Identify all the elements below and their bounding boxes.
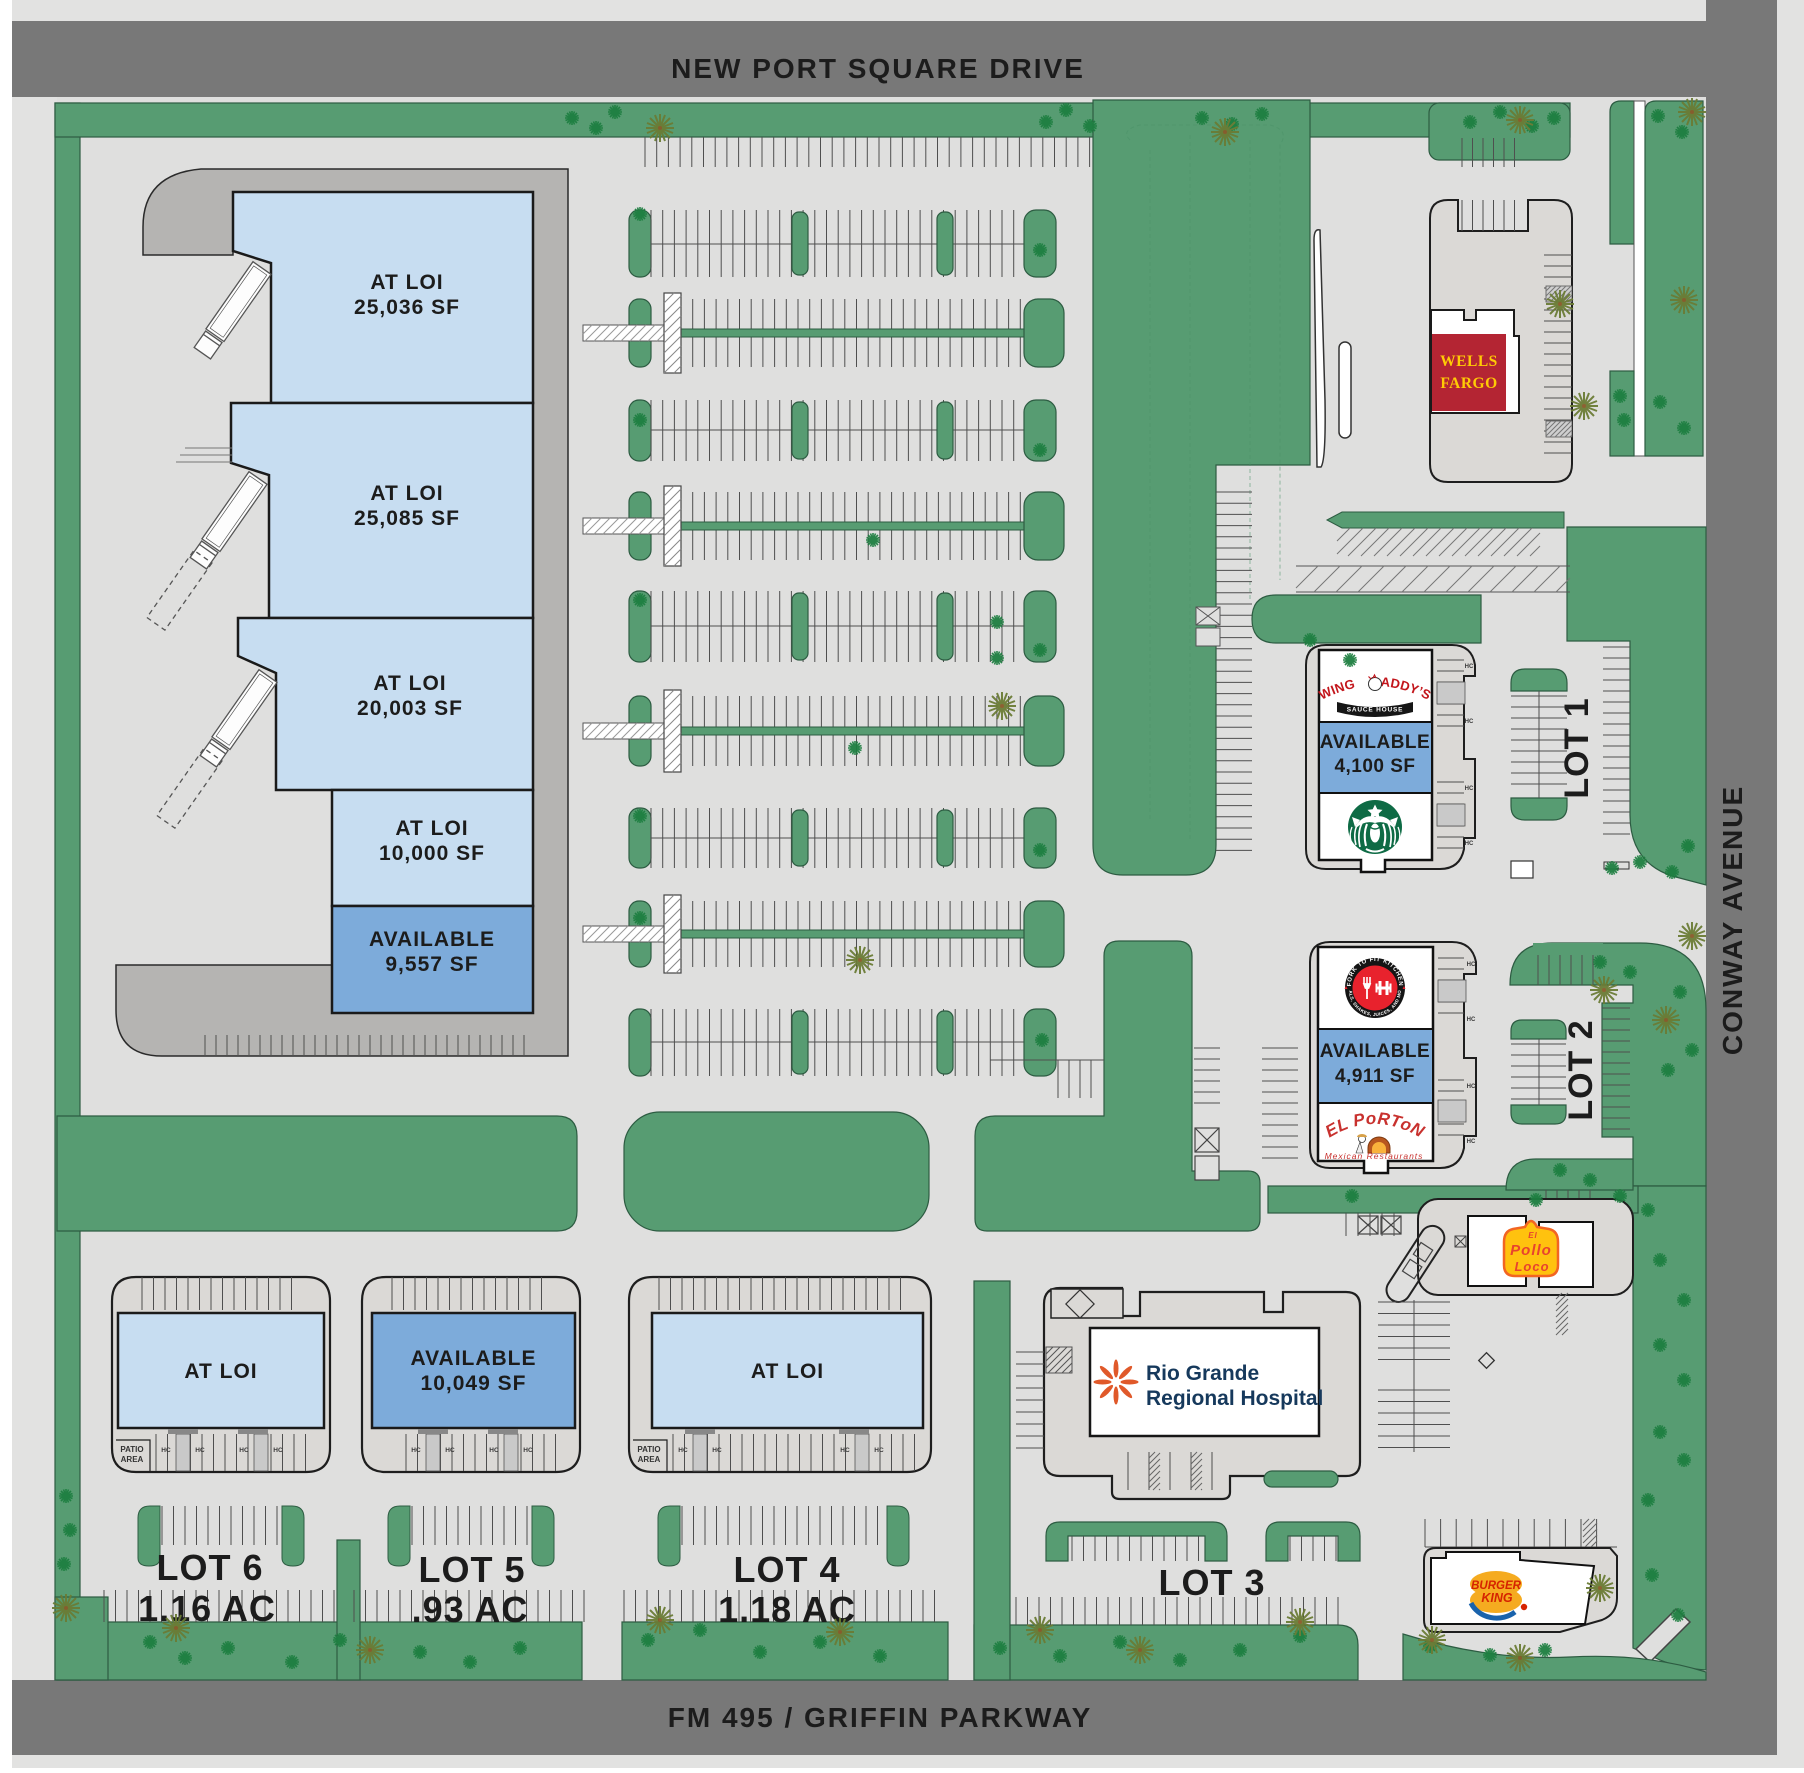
svg-text:CONWAY AVENUE: CONWAY AVENUE xyxy=(1717,785,1748,1055)
svg-text:4,100 SF: 4,100 SF xyxy=(1334,756,1415,777)
svg-text:FM 495 / GRIFFIN PARKWAY: FM 495 / GRIFFIN PARKWAY xyxy=(668,1702,1093,1733)
svg-text:HC: HC xyxy=(1467,1139,1476,1145)
svg-text:Rio Grande: Rio Grande xyxy=(1146,1362,1259,1385)
svg-text:10,000 SF: 10,000 SF xyxy=(379,842,485,865)
svg-text:Loco: Loco xyxy=(1514,1259,1549,1274)
svg-text:SAUCE HOUSE: SAUCE HOUSE xyxy=(1347,707,1403,714)
svg-text:AT LOI: AT LOI xyxy=(370,482,443,505)
svg-text:Pollo: Pollo xyxy=(1510,1242,1552,1259)
svg-text:1.16 AC: 1.16 AC xyxy=(138,1588,276,1629)
svg-text:Mexican Restaurants: Mexican Restaurants xyxy=(1325,1151,1424,1161)
svg-text:HC: HC xyxy=(1467,1084,1476,1090)
svg-text:HC: HC xyxy=(489,1447,499,1454)
svg-text:HC: HC xyxy=(445,1447,455,1454)
svg-text:PATIO: PATIO xyxy=(637,1445,660,1454)
svg-text:4,911 SF: 4,911 SF xyxy=(1335,1066,1415,1087)
svg-text:.93 AC: .93 AC xyxy=(412,1589,529,1630)
svg-text:PATIO: PATIO xyxy=(120,1445,143,1454)
svg-text:25,036 SF: 25,036 SF xyxy=(354,296,460,319)
svg-text:25,085 SF: 25,085 SF xyxy=(354,507,460,530)
svg-text:AVAILABLE: AVAILABLE xyxy=(1320,732,1430,753)
svg-text:LOT 6: LOT 6 xyxy=(156,1547,263,1588)
svg-text:10,049 SF: 10,049 SF xyxy=(421,1372,527,1395)
svg-text:HC: HC xyxy=(840,1447,850,1454)
svg-text:WELLS: WELLS xyxy=(1440,353,1498,370)
svg-text:HC: HC xyxy=(1467,962,1476,968)
svg-text:HC: HC xyxy=(712,1447,722,1454)
svg-text:AT LOI: AT LOI xyxy=(395,817,468,840)
svg-text:AT LOI: AT LOI xyxy=(373,672,446,695)
svg-text:Regional Hospital: Regional Hospital xyxy=(1146,1387,1323,1410)
svg-text:AT LOI: AT LOI xyxy=(184,1360,257,1383)
svg-text:AT LOI: AT LOI xyxy=(370,271,443,294)
svg-text:LOT 2: LOT 2 xyxy=(1562,1019,1600,1120)
svg-text:El: El xyxy=(1528,1231,1538,1240)
svg-text:NEW PORT SQUARE DRIVE: NEW PORT SQUARE DRIVE xyxy=(671,53,1085,84)
svg-text:AVAILABLE: AVAILABLE xyxy=(369,928,495,951)
svg-text:1.18 AC: 1.18 AC xyxy=(718,1589,856,1630)
svg-text:AVAILABLE: AVAILABLE xyxy=(1320,1041,1430,1062)
svg-text:HC: HC xyxy=(239,1447,249,1454)
svg-text:HC: HC xyxy=(874,1447,884,1454)
svg-text:HC: HC xyxy=(1465,664,1474,670)
svg-text:AVAILABLE: AVAILABLE xyxy=(410,1347,536,1370)
svg-text:HC: HC xyxy=(1467,1017,1476,1023)
svg-text:LOT 5: LOT 5 xyxy=(418,1549,525,1590)
svg-text:HC: HC xyxy=(411,1447,421,1454)
svg-text:HC: HC xyxy=(195,1447,205,1454)
svg-text:AREA: AREA xyxy=(121,1455,144,1464)
svg-text:HC: HC xyxy=(1465,841,1474,847)
svg-text:LOT 3: LOT 3 xyxy=(1158,1562,1265,1603)
svg-text:HC: HC xyxy=(161,1447,171,1454)
svg-text:LOT 4: LOT 4 xyxy=(733,1549,840,1590)
svg-text:9,557 SF: 9,557 SF xyxy=(385,953,478,976)
svg-text:AT LOI: AT LOI xyxy=(751,1360,824,1383)
svg-text:HC: HC xyxy=(1465,719,1474,725)
svg-text:20,003 SF: 20,003 SF xyxy=(357,697,463,720)
svg-text:HC: HC xyxy=(273,1447,283,1454)
svg-text:AREA: AREA xyxy=(638,1455,661,1464)
svg-text:FARGO: FARGO xyxy=(1440,375,1497,392)
svg-text:HC: HC xyxy=(1465,786,1474,792)
svg-text:HC: HC xyxy=(523,1447,533,1454)
svg-text:KING: KING xyxy=(1481,1591,1513,1605)
svg-text:LOT 1: LOT 1 xyxy=(1558,697,1596,798)
svg-text:HC: HC xyxy=(678,1447,688,1454)
